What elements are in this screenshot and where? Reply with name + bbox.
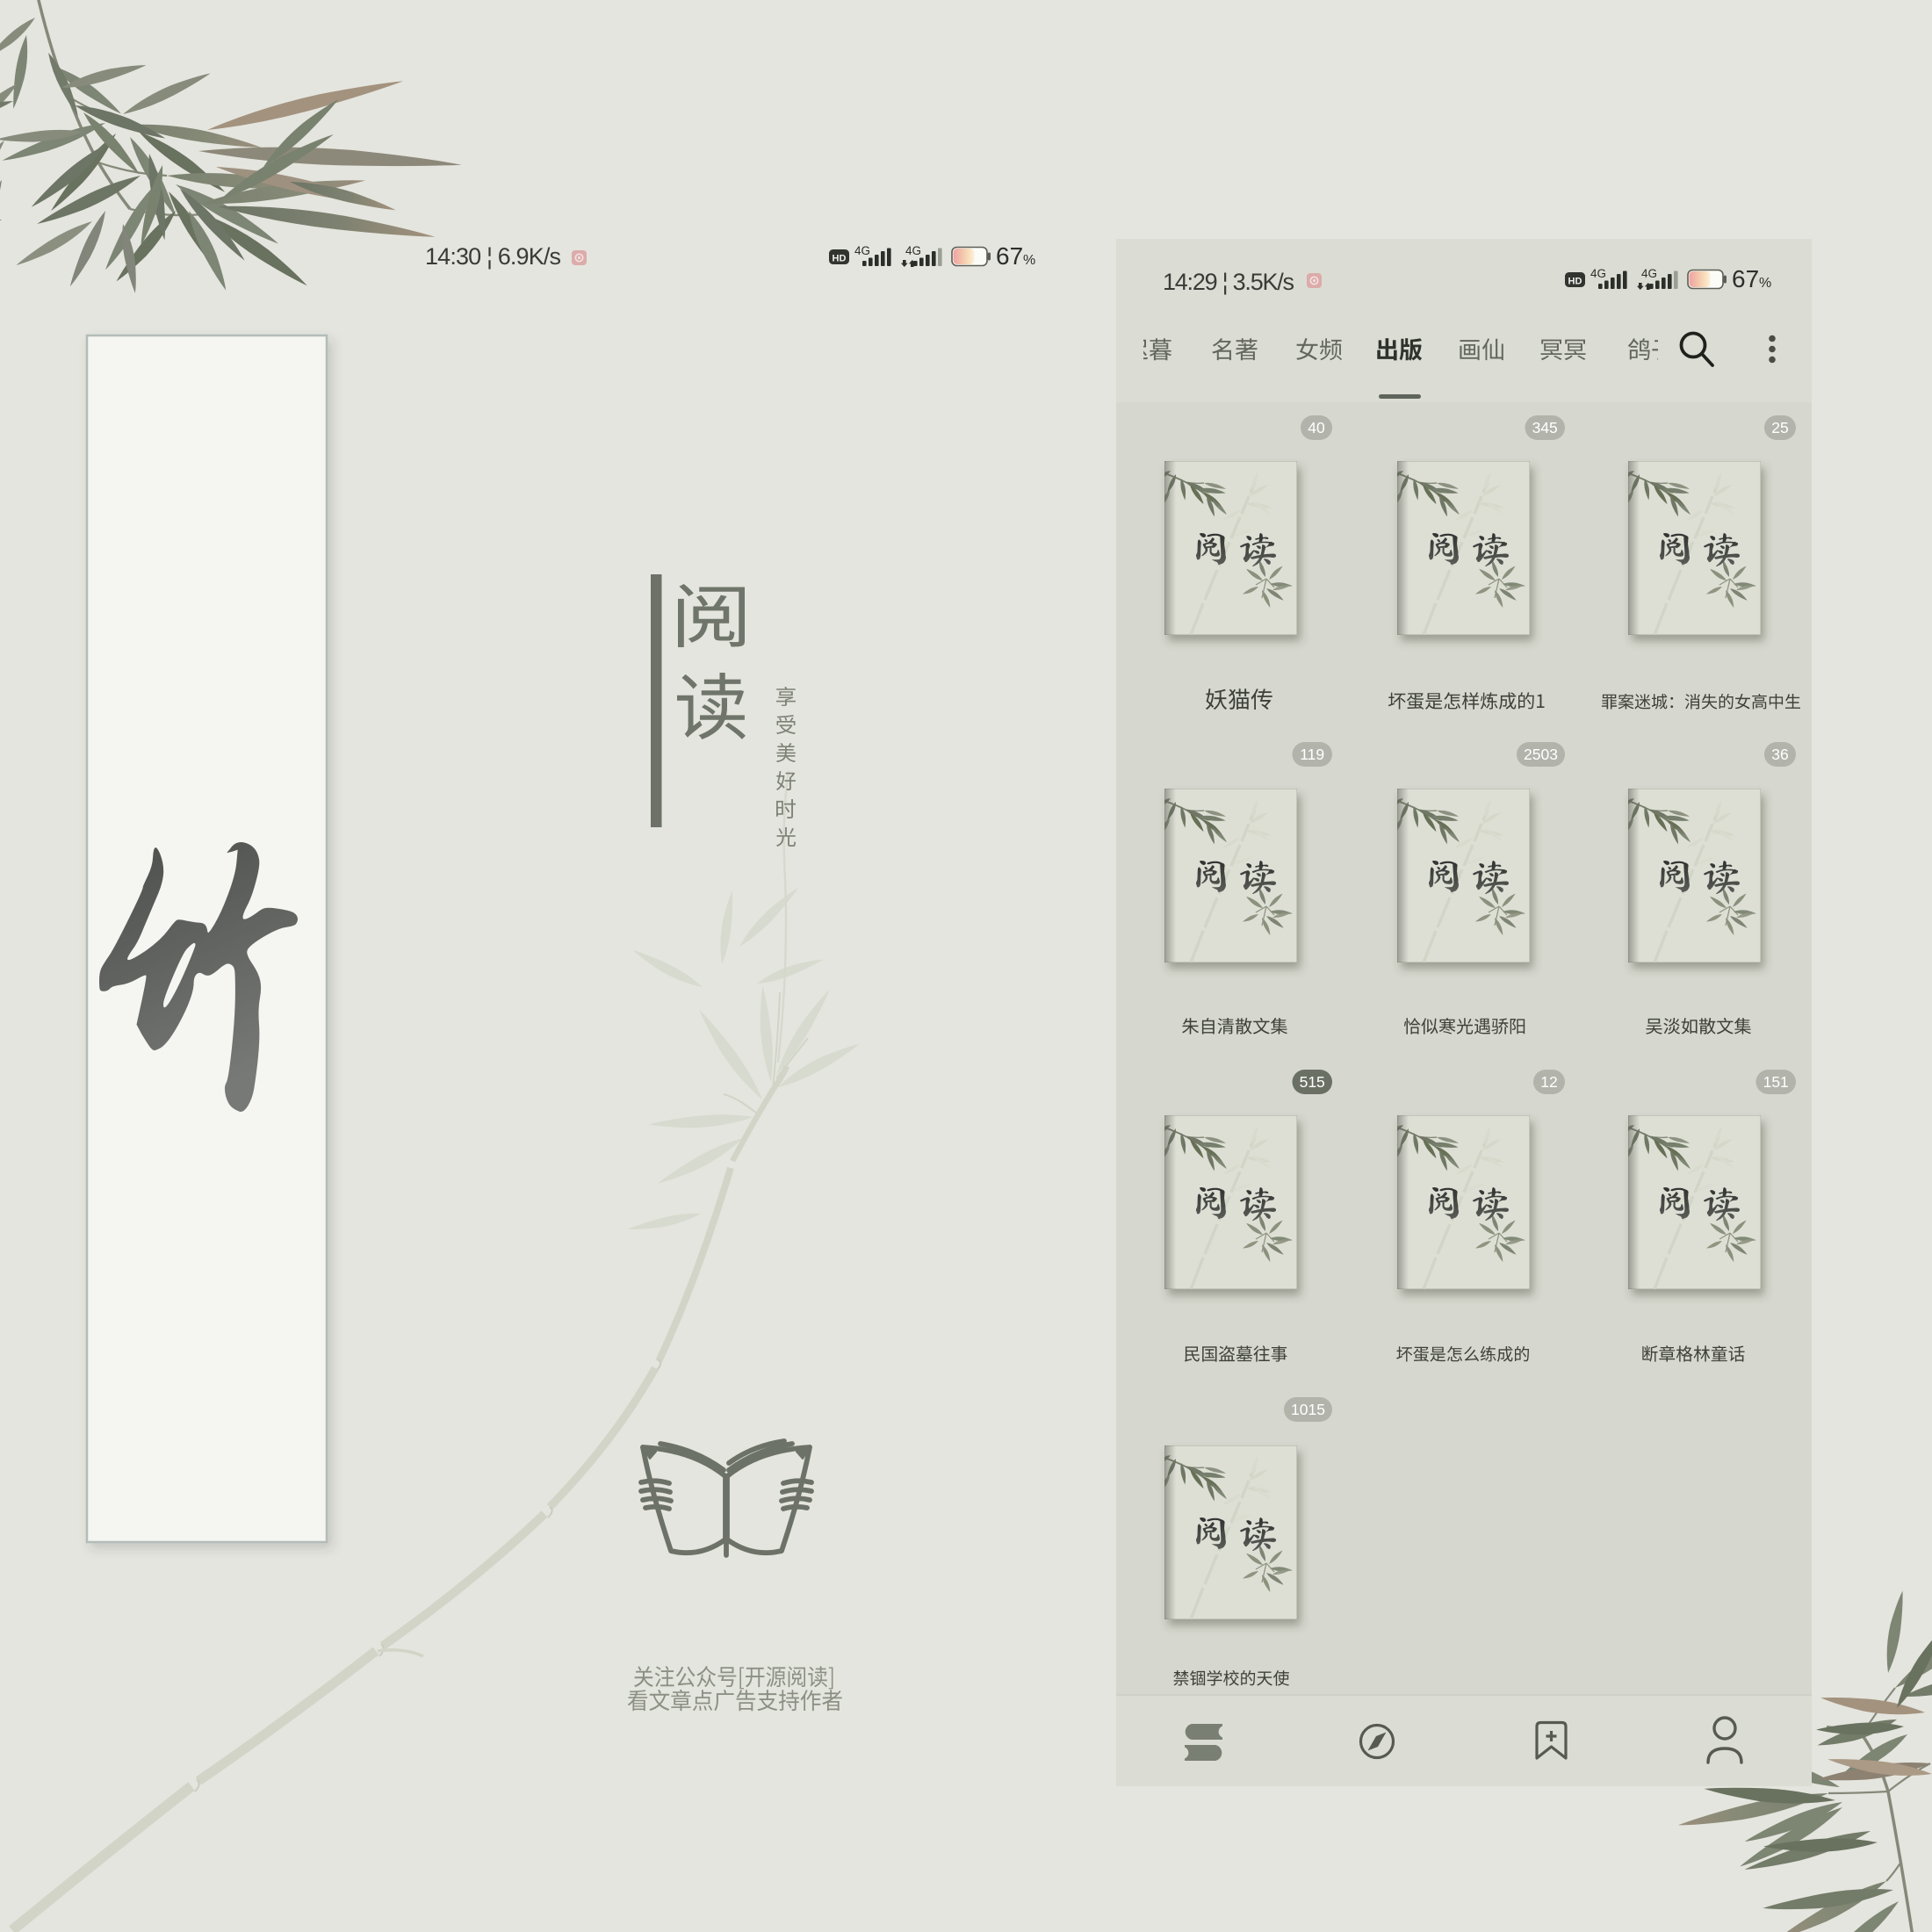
svg-text:14:30 ¦ 6.9K/s: 14:30 ¦ 6.9K/s xyxy=(425,243,561,270)
svg-text:151: 151 xyxy=(1763,1073,1789,1091)
svg-text:36: 36 xyxy=(1771,746,1788,763)
svg-text:1015: 1015 xyxy=(1291,1401,1325,1418)
svg-text:2503: 2503 xyxy=(1524,746,1558,763)
svg-text:14:29 ¦ 3.5K/s: 14:29 ¦ 3.5K/s xyxy=(1163,269,1294,295)
svg-text:25: 25 xyxy=(1771,419,1788,436)
svg-text:40: 40 xyxy=(1308,419,1325,436)
svg-text:515: 515 xyxy=(1300,1073,1325,1091)
svg-text:345: 345 xyxy=(1532,419,1558,436)
svg-text:12: 12 xyxy=(1540,1073,1557,1091)
svg-text:119: 119 xyxy=(1300,746,1324,763)
